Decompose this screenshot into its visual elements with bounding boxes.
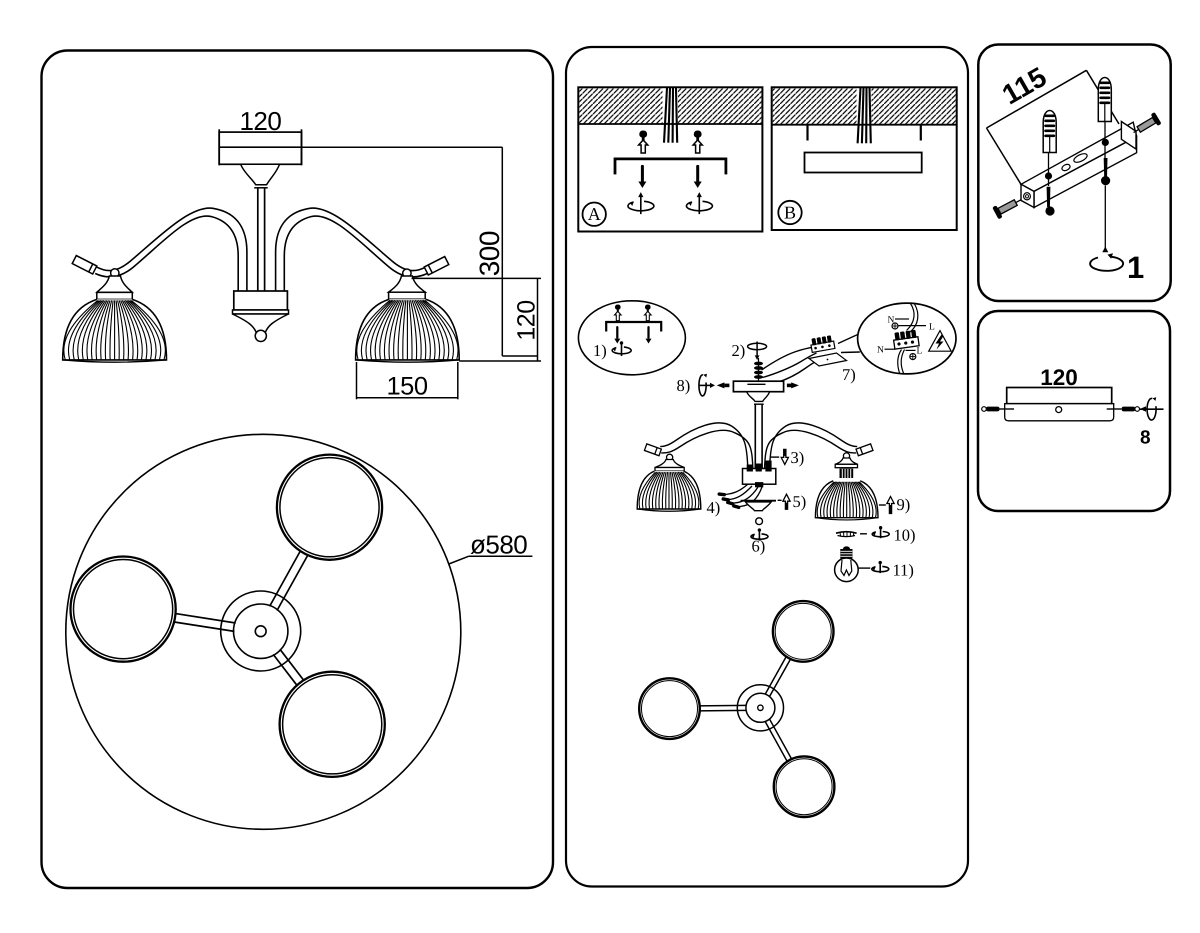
- svg-text:3): 3): [791, 448, 805, 467]
- svg-text:120: 120: [239, 106, 281, 136]
- svg-text:L: L: [929, 323, 935, 333]
- svg-text:B: B: [784, 203, 796, 223]
- svg-text:L: L: [917, 347, 923, 357]
- svg-text:150: 150: [386, 373, 427, 401]
- svg-text:N: N: [877, 346, 884, 356]
- svg-text:300: 300: [474, 231, 505, 276]
- svg-text:1): 1): [593, 341, 607, 360]
- svg-text:8): 8): [677, 376, 691, 395]
- svg-text:4): 4): [707, 498, 721, 517]
- svg-text:A: A: [588, 204, 601, 224]
- svg-text:8: 8: [1140, 428, 1151, 449]
- svg-text:ø580: ø580: [470, 530, 527, 560]
- svg-text:120: 120: [1040, 365, 1078, 390]
- svg-text:1: 1: [1127, 250, 1144, 285]
- svg-text:2): 2): [732, 341, 746, 360]
- svg-text:9): 9): [897, 495, 911, 514]
- svg-text:5): 5): [793, 492, 807, 511]
- svg-text:120: 120: [513, 300, 541, 340]
- svg-text:11): 11): [893, 561, 914, 580]
- svg-text:6): 6): [752, 537, 766, 556]
- svg-text:7): 7): [842, 365, 856, 384]
- svg-text:10): 10): [894, 526, 916, 545]
